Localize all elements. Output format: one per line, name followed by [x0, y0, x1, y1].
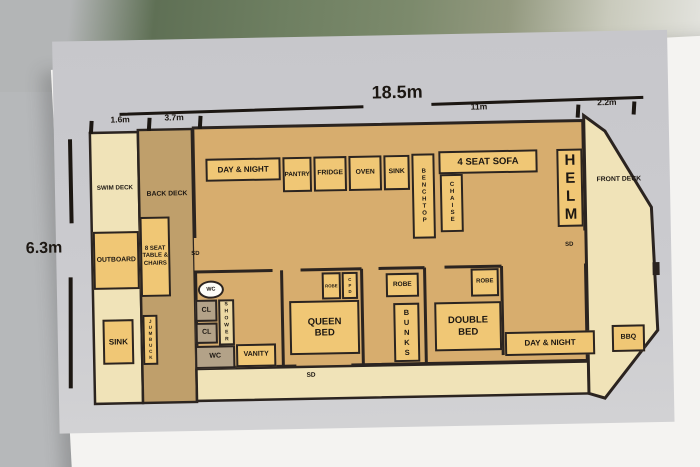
shower: SHOWER	[218, 299, 235, 345]
bbq: BBQ	[612, 324, 646, 352]
oven: OVEN	[348, 155, 382, 191]
cupboard: CPD	[342, 272, 359, 299]
galley-sink: SINK	[383, 155, 410, 190]
swim-deck-label: SWIM DECK	[92, 185, 138, 193]
double-bed: DOUBLE BED	[434, 301, 502, 351]
dim-front-label: 2.2m	[584, 98, 629, 108]
outboard-motor: OUTBOARD	[93, 231, 140, 290]
back-deck-label: BACK DECK	[142, 190, 192, 198]
sliding-door-back-label: SD	[191, 251, 199, 258]
front-deck-label: FRONT DECK	[589, 175, 649, 184]
double-robe: ROBE	[471, 268, 500, 297]
photo-of-floorplan: 18.5m 1.6m 3.7m 11m 2.2m 6.3m SWIM DECK …	[0, 0, 700, 467]
dim-beam-label: 6.3m	[18, 239, 70, 258]
bunks-robe: ROBE	[386, 273, 419, 298]
four-seat-sofa: 4 SEAT SOFA	[438, 149, 537, 174]
chaise: CHAISE	[440, 174, 464, 232]
closet-lower: CL	[196, 323, 218, 344]
dim-back-label: 3.7m	[152, 113, 197, 123]
dim-swim-label: 1.6m	[98, 115, 143, 125]
floorplan: 18.5m 1.6m 3.7m 11m 2.2m 6.3m SWIM DECK …	[0, 0, 700, 467]
queen-robe: ROBE	[322, 272, 342, 299]
day-night-lounge-galley: DAY & NIGHT	[205, 157, 280, 181]
dim-total-label: 18.5m	[357, 82, 437, 103]
dining-table: 8 SEAT TABLE & CHAIRS	[139, 216, 171, 297]
bunks: BUNKS	[393, 303, 420, 362]
queen-bed: QUEEN BED	[289, 300, 360, 355]
sliding-door-side-label: SD	[306, 372, 315, 379]
day-night-lounge-saloon: DAY & NIGHT	[505, 330, 595, 356]
stern-sink: SINK	[102, 319, 134, 365]
closet-upper: CL	[195, 300, 217, 322]
sliding-door-front-label: SD	[565, 242, 573, 249]
jumbuck-unit: JUMBUCK	[142, 315, 158, 365]
dim-cabin-label: 11m	[456, 102, 501, 112]
pantry: PANTRY	[282, 157, 312, 193]
wc-room: WC	[195, 345, 235, 369]
vanity: VANITY	[236, 343, 276, 367]
helm-station: HELM	[556, 149, 583, 227]
benchtop: BENCHTOP	[411, 153, 436, 238]
fridge: FRIDGE	[313, 156, 347, 192]
